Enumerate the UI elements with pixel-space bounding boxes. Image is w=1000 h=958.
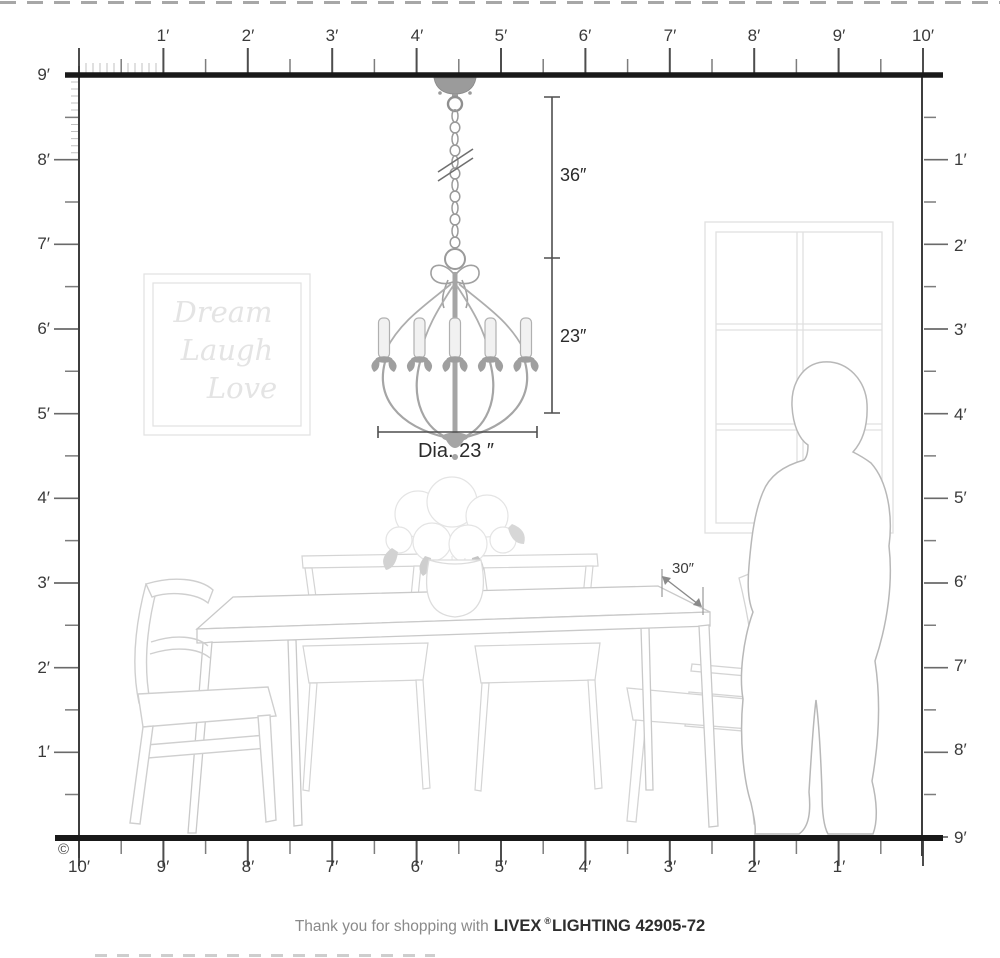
wall-art-line-2: Laugh [150, 331, 304, 369]
ruler-label-bottom-10ft: 10′ [62, 857, 96, 877]
ruler-label-top-5ft: 5′ [484, 26, 518, 46]
ruler-label-bottom-2ft: 2′ [737, 857, 771, 877]
product-dimension-diagram: 1′ 2′ 3′ 4′ 5′ 6′ 7′ 8′ 9′ 10′ 9′ 8′ 7′ … [0, 0, 1000, 958]
ruler-label-bottom-5ft: 5′ [484, 857, 518, 877]
chandelier-chain [450, 110, 460, 248]
ruler-label-top-7ft: 7′ [653, 26, 687, 46]
wall-art-quote: Dream Laugh Love [150, 293, 304, 407]
ruler-label-left-6ft: 6′ [20, 319, 50, 339]
footer-text: Thank you for shopping withLIVEX®LIGHTIN… [0, 916, 1000, 936]
ruler-label-right-4ft: 4′ [954, 405, 990, 425]
ruler-label-bottom-9ft: 9′ [146, 857, 180, 877]
ruler-label-right-8ft: 8′ [954, 740, 990, 760]
person-silhouette [741, 362, 890, 834]
ruler-label-right-9ft: 9′ [954, 828, 990, 848]
ruler-label-left-3ft: 3′ [20, 573, 50, 593]
fixture-diameter-label: Dia. 23 ″ [388, 440, 524, 463]
ruler-label-top-2ft: 2′ [231, 26, 265, 46]
ruler-label-top-10ft: 10′ [906, 26, 940, 46]
ruler-label-left-4ft: 4′ [20, 488, 50, 508]
wall-art-line-1: Dream [150, 293, 304, 331]
footer-model-number: LIGHTING 42905-72 [552, 917, 705, 935]
ruler-label-right-2ft: 2′ [954, 236, 990, 256]
ruler-label-right-1ft: 1′ [954, 150, 990, 170]
ruler-label-top-4ft: 4′ [400, 26, 434, 46]
ruler-label-left-5ft: 5′ [20, 404, 50, 424]
brand-name: LIVEX [494, 917, 542, 935]
ruler-label-bottom-7ft: 7′ [315, 857, 349, 877]
dimension-lines [378, 97, 560, 438]
ruler-label-bottom-1ft: 1′ [822, 857, 856, 877]
ruler-label-left-8ft: 8′ [20, 150, 50, 170]
ruler-label-top-6ft: 6′ [568, 26, 602, 46]
ruler-label-bottom-8ft: 8′ [231, 857, 265, 877]
ruler-label-bottom-3ft: 3′ [653, 857, 687, 877]
bottom-edge-artifact [95, 954, 435, 957]
chain-break-mark [438, 149, 473, 181]
ruler-label-right-3ft: 3′ [954, 320, 990, 340]
ruler-label-right-6ft: 6′ [954, 572, 990, 592]
chain-length-label: 36″ [560, 165, 586, 186]
ruler-label-bottom-4ft: 4′ [568, 857, 602, 877]
chandelier-fixture [371, 78, 538, 460]
ruler-label-top-1ft: 1′ [146, 26, 180, 46]
ruler-label-left-7ft: 7′ [20, 234, 50, 254]
room-scene-illustration [0, 0, 1000, 958]
ruler-label-left-2ft: 2′ [20, 658, 50, 678]
ruler-label-top-3ft: 3′ [315, 26, 349, 46]
ruler-label-left-9ft: 9′ [20, 65, 50, 85]
footer-prefix: Thank you for shopping with [295, 918, 489, 935]
dining-chair-back-left [302, 554, 430, 791]
ruler-label-right-5ft: 5′ [954, 488, 990, 508]
ruler-label-left-1ft: 1′ [20, 742, 50, 762]
fixture-height-label: 23″ [560, 326, 586, 347]
ruler-label-top-9ft: 9′ [822, 26, 856, 46]
copyright-symbol: © [58, 841, 69, 858]
ruler-label-top-8ft: 8′ [737, 26, 771, 46]
chandelier-canopy [434, 78, 476, 98]
ruler-label-bottom-6ft: 6′ [400, 857, 434, 877]
registered-trademark-symbol: ® [544, 916, 551, 926]
wall-art-line-3: Love [150, 369, 304, 407]
ruler-label-right-7ft: 7′ [954, 656, 990, 676]
table-depth-label: 30″ [662, 560, 704, 577]
